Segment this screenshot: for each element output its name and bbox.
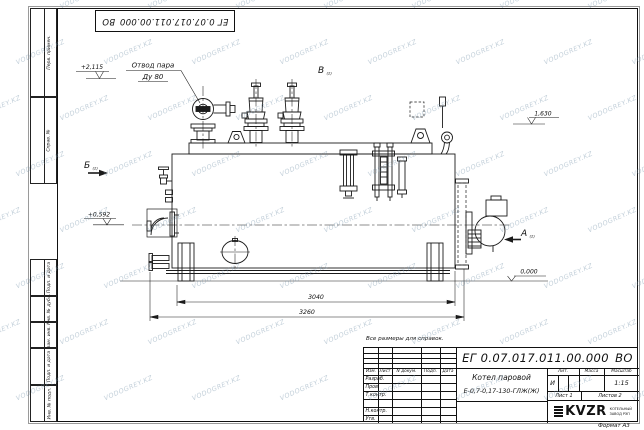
lifting-lugs	[228, 97, 453, 154]
view-markers	[88, 170, 521, 243]
elevation-marks	[76, 72, 559, 282]
elev-top-text: +2,115	[81, 64, 103, 71]
elev-right-text: 1,630	[534, 111, 551, 118]
dim-overall-text: 3260	[299, 309, 315, 316]
boiler-shell	[166, 143, 455, 274]
steam-outlet-label-1: Отвод пара	[132, 62, 175, 70]
drawing-sheet: Перв. примен. Справ. № Подп. и дата Инв.…	[0, 0, 644, 430]
steam-outlet-label-2: Ду 80	[142, 73, 164, 81]
water-level-gauges	[340, 143, 407, 201]
safety-valves	[242, 83, 304, 143]
dim-inner-text: 3040	[308, 294, 324, 301]
boiler-drawing: 3040 3260 +2,115 1,630 +0,592 0,000 Б (2…	[0, 0, 644, 430]
view-v-ref: (2)	[327, 71, 333, 76]
safety-valve	[242, 83, 268, 143]
burner-assembly	[456, 179, 508, 269]
view-v-label: В	[318, 66, 324, 76]
support-legs	[120, 243, 548, 281]
feed-fittings	[147, 167, 179, 271]
view-a-label: А	[520, 229, 527, 239]
view-b-label: Б	[84, 161, 90, 171]
elev-mid-text: +0,592	[88, 212, 110, 219]
view-a-ref: (2)	[530, 234, 536, 239]
view-b-ref: (2)	[93, 166, 99, 171]
elev-zero-text: 0,000	[520, 269, 537, 276]
steam-outlet-valve	[191, 99, 235, 144]
safety-valve	[278, 83, 304, 143]
